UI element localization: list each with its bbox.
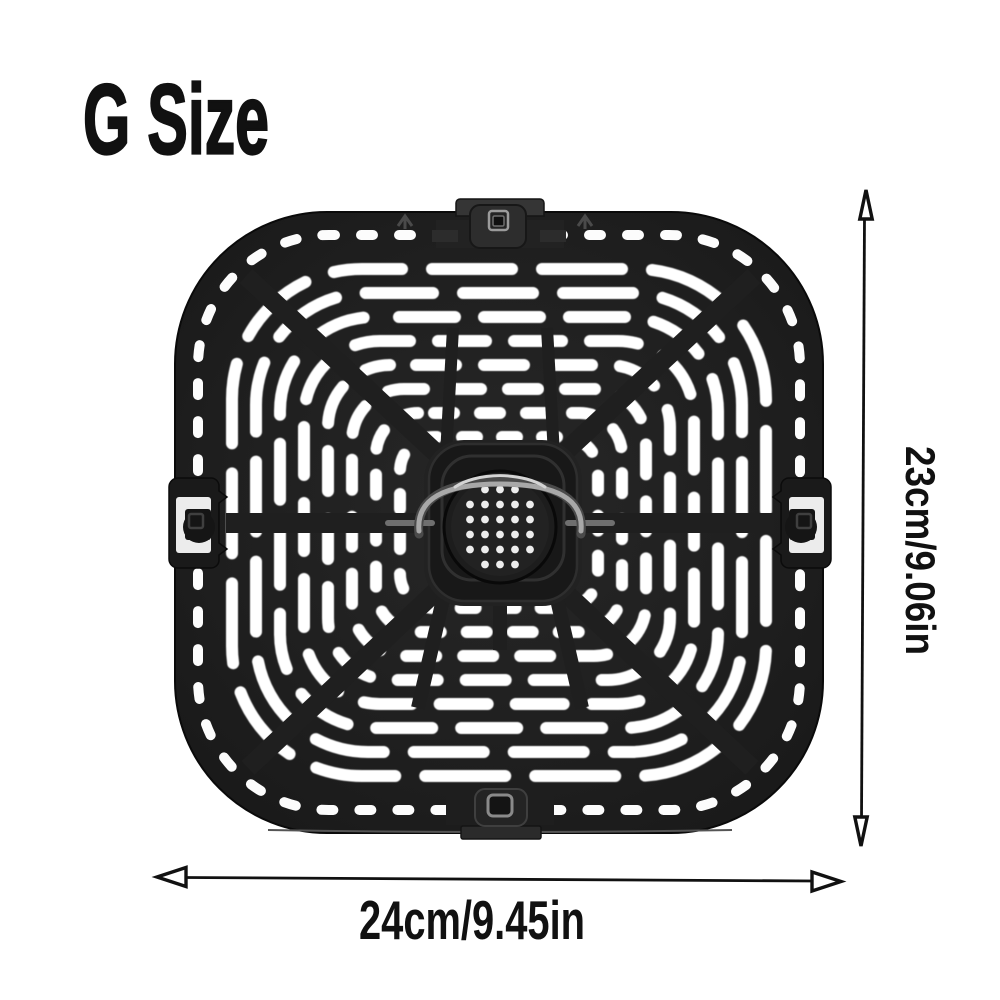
svg-text:G Size: G Size bbox=[83, 64, 269, 175]
svg-text:24cm/9.45in: 24cm/9.45in bbox=[359, 889, 585, 951]
svg-text:23cm/9.06in: 23cm/9.06in bbox=[897, 446, 944, 655]
